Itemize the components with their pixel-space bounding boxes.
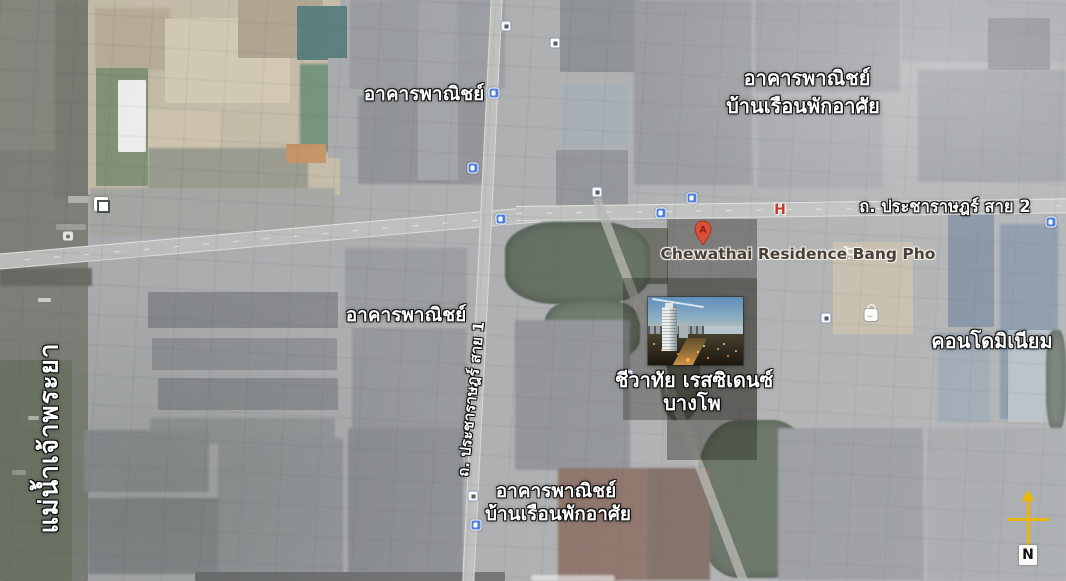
shopping-bag-icon[interactable] [865,309,878,321]
photo-condo-tower [662,307,677,351]
compass-north-letter: N [1019,545,1037,565]
photo-street-lights [653,343,655,345]
bus-stop-icon[interactable] [471,520,482,531]
map-poi-icons: H [0,0,1066,581]
clipped-bottom-label [531,575,615,581]
bus-stop-icon[interactable] [496,214,507,225]
compass-arrowhead-icon [1021,490,1035,501]
hospital-icon[interactable]: H [774,203,786,217]
bus-stop-icon[interactable] [656,208,667,219]
poi-square-icon[interactable] [94,197,108,211]
poi-square-icon[interactable] [469,492,478,501]
satellite-map[interactable]: H A แม่น้ำเจ้าพระยา ถ. ประชาราษฎร์ สาย 2… [0,0,1066,581]
bus-stop-icon[interactable] [687,193,698,204]
poi-square-icon[interactable] [593,188,602,197]
compass-horizontal-arm [1008,518,1049,521]
pier-icon[interactable] [63,232,73,241]
marker-letter: A [700,226,707,236]
bus-stop-icon[interactable] [489,88,500,99]
poi-square-icon[interactable] [822,314,831,323]
bus-stop-icon[interactable] [1046,217,1057,228]
poi-square-icon[interactable] [624,371,633,380]
poi-square-icon[interactable] [470,88,479,97]
location-marker-pin[interactable]: A [694,220,712,246]
property-photo-thumbnail[interactable] [648,297,743,365]
poi-square-icon[interactable] [551,39,560,48]
compass-vertical-arm [1027,499,1030,545]
poi-square-icon[interactable] [502,22,511,31]
photo-river [704,326,743,334]
bus-stop-icon[interactable] [468,163,479,174]
shopping-cart-icon[interactable] [842,244,862,262]
photo-small-building [679,323,688,338]
